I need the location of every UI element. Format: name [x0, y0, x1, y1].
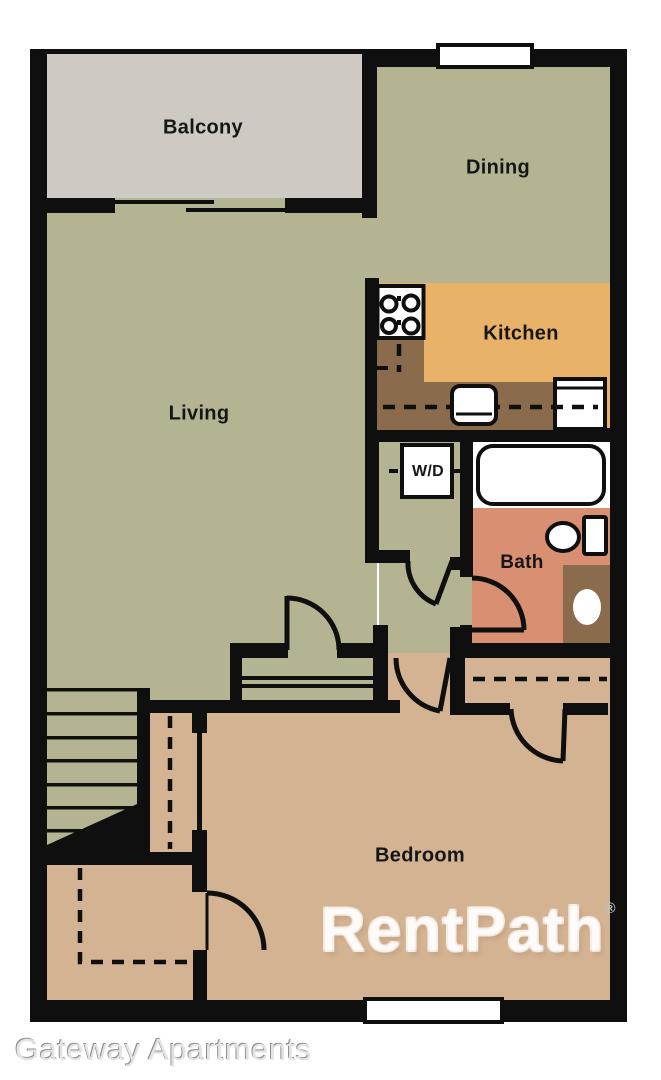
- storage-room-floor: [47, 865, 207, 1002]
- wall-segment: [563, 703, 608, 715]
- wall-segment: [460, 440, 473, 577]
- wall-segment: [456, 703, 510, 715]
- wall-segment: [137, 700, 400, 713]
- wall-segment: [610, 49, 627, 1022]
- wall-segment: [30, 198, 115, 213]
- property-name-caption: Gateway Apartments: [15, 1032, 312, 1068]
- wall-segment: [450, 627, 465, 715]
- wall-segment: [373, 625, 388, 713]
- window-icon: [438, 45, 532, 67]
- wall-segment: [365, 550, 410, 563]
- window-icon: [365, 999, 502, 1022]
- refrigerator-icon: [555, 379, 605, 429]
- kitchen-sink-icon: [452, 386, 496, 424]
- wall-segment: [285, 198, 377, 213]
- rentpath-watermark: RentPath®: [320, 894, 616, 966]
- bathtub-icon: [478, 446, 604, 504]
- wall-segment: [192, 830, 207, 892]
- wall-segment: [230, 643, 288, 658]
- wall-segment: [47, 852, 207, 865]
- room-label-laundry: W/D: [412, 463, 444, 481]
- wall-segment: [30, 1000, 627, 1022]
- wall-segment: [362, 49, 377, 218]
- closet-rod-icon: [242, 684, 373, 688]
- living-floor: [47, 198, 377, 704]
- closet-door-panel: [197, 733, 202, 830]
- closet-rod-icon: [242, 676, 373, 680]
- wall-segment: [193, 950, 207, 1002]
- room-label-bath: Bath: [500, 552, 543, 574]
- wall-segment: [137, 688, 150, 865]
- vanity-sink-icon: [563, 565, 610, 643]
- floor-plan-page: Balcony Dining Kitchen Living W/D Bath B…: [0, 0, 661, 1080]
- room-label-dining: Dining: [466, 157, 530, 180]
- room-label-living: Living: [169, 403, 230, 426]
- room-label-balcony: Balcony: [163, 117, 243, 140]
- registered-trademark-icon: ®: [605, 900, 616, 917]
- watermark-text: RentPath: [320, 895, 605, 965]
- room-label-kitchen: Kitchen: [483, 323, 558, 346]
- stove-icon: [378, 286, 424, 338]
- stairs-icon: [47, 686, 137, 865]
- wall-segment: [30, 49, 47, 1022]
- wall-segment: [192, 713, 207, 733]
- wall-segment: [460, 643, 610, 658]
- room-label-bedroom: Bedroom: [375, 845, 465, 868]
- wall-segment: [30, 49, 362, 54]
